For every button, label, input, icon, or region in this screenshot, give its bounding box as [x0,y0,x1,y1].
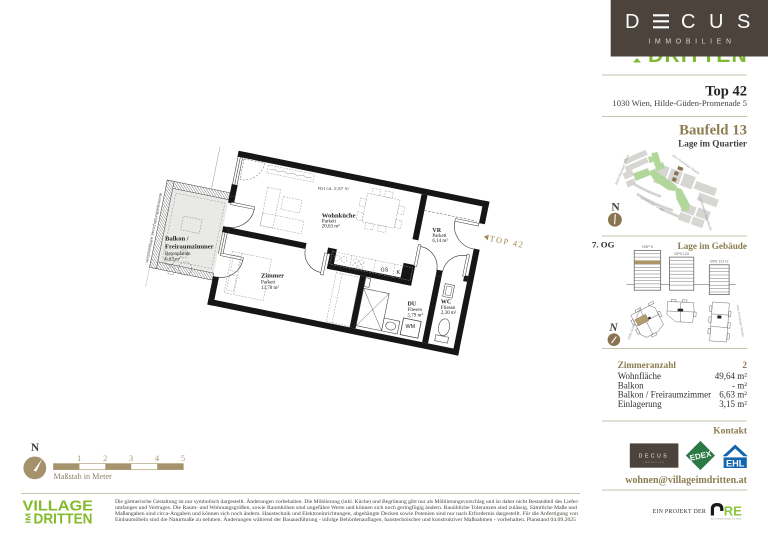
svg-text:3: 3 [129,454,133,463]
svg-text:20,63 m²: 20,63 m² [322,223,340,229]
svg-text:1030 Wien, Hilde-Güden-Promena: 1030 Wien, Hilde-Güden-Promenade 5 [612,98,747,108]
svg-text:wohnen@villageimdritten.at: wohnen@villageimdritten.at [625,475,747,486]
svg-text:Kontakt: Kontakt [713,427,748,437]
svg-text:Fliesen: Fliesen [408,308,423,313]
svg-text:HGP 5: HGP 5 [642,245,653,249]
svg-text:D: D [625,11,639,33]
svg-text:IM: IM [26,513,33,524]
svg-text:GS: GS [381,268,389,274]
svg-text:U: U [709,11,723,33]
svg-text:4: 4 [155,454,159,463]
svg-text:Betonplatten: Betonplatten [165,252,191,257]
svg-text:Freiraumzimmer: Freiraumzimmer [165,244,214,251]
svg-text:C: C [681,11,695,33]
svg-text:2,30 m²: 2,30 m² [441,310,457,316]
svg-text:N: N [608,322,618,334]
svg-text:6,14 m²: 6,14 m² [432,238,448,244]
svg-text:Maßstab in Meter: Maßstab in Meter [54,472,112,481]
svg-text:5,79 m²: 5,79 m² [408,312,424,318]
svg-text:Einlagerung: Einlagerung [618,399,662,409]
svg-text:WM: WM [406,324,416,330]
svg-text:RE: RE [724,504,742,519]
svg-text:N: N [611,202,620,214]
svg-text:S: S [737,11,750,33]
svg-text:Zimmer: Zimmer [261,273,284,280]
svg-text:Maßangaben sind circa-Angaben: Maßangaben sind circa-Angaben und können… [115,510,578,517]
svg-text:RH ca. 2,57 m: RH ca. 2,57 m [318,186,349,192]
svg-text:GPS 121+2: GPS 121+2 [710,260,729,264]
svg-text:6,63 m²: 6,63 m² [165,257,181,263]
svg-text:Wohnküche: Wohnküche [322,213,356,220]
svg-text:IMMOBILIEN: IMMOBILIEN [648,39,735,46]
svg-text:Lage im Quartier: Lage im Quartier [678,139,747,149]
svg-text:DECUS: DECUS [639,454,670,460]
svg-text:VR: VR [432,228,441,234]
svg-text:WC: WC [441,299,451,305]
svg-text:DRITTEN: DRITTEN [34,512,93,528]
svg-text:GPS 123: GPS 123 [674,252,689,256]
svg-text:5: 5 [181,454,185,463]
svg-text:Die gärtnerische Gestaltung is: Die gärtnerische Gestaltung ist nur symb… [115,498,579,505]
svg-text:N: N [31,442,40,454]
svg-text:2: 2 [742,360,747,370]
svg-text:Zimmeranzahl: Zimmeranzahl [618,360,677,370]
svg-text:Lage im Gebäude: Lage im Gebäude [678,241,747,251]
svg-text:DU: DU [408,302,417,308]
svg-text:AUSTRIAN REAL ESTATE: AUSTRIAN REAL ESTATE [711,517,742,520]
svg-text:umfanges und Vertrages. Die Ra: umfanges und Vertrages. Die Raum- und Wo… [115,504,577,511]
svg-text:Fliesen: Fliesen [441,306,456,311]
svg-text:K: K [397,270,401,276]
svg-text:1: 1 [77,454,81,463]
svg-text:IMMOBILIEN: IMMOBILIEN [644,462,665,464]
svg-text:EIN PROJEKT DER: EIN PROJEKT DER [653,509,706,515]
svg-text:13,78 m²: 13,78 m² [261,285,279,291]
svg-text:Baufeld 13: Baufeld 13 [679,122,747,138]
svg-text:EHL: EHL [726,459,745,469]
svg-text:Parkett: Parkett [261,280,276,285]
svg-text:2: 2 [103,454,107,463]
svg-text:Balkon /: Balkon / [165,236,189,243]
svg-text:7. OG: 7. OG [592,239,615,249]
svg-text:Einbaumöbeln sind die Naturmaß: Einbaumöbeln sind die Naturmaße zu nehme… [115,516,576,523]
svg-text:3,15 m²: 3,15 m² [719,399,747,409]
